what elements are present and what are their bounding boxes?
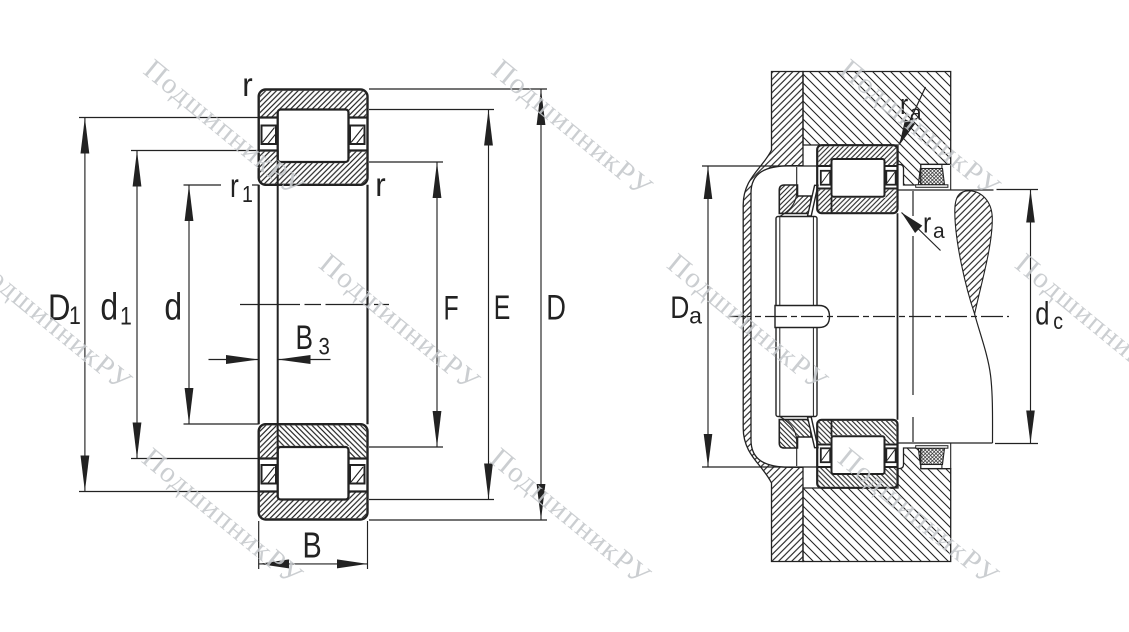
svg-text:r: r [230, 168, 239, 204]
svg-text:F: F [444, 290, 459, 328]
svg-text:3: 3 [319, 333, 330, 360]
svg-text:B: B [296, 319, 313, 357]
svg-text:1: 1 [120, 302, 132, 330]
svg-text:E: E [494, 289, 511, 327]
svg-text:r: r [923, 207, 931, 239]
svg-text:B: B [303, 524, 322, 565]
svg-text:a: a [689, 303, 702, 329]
svg-text:1: 1 [242, 182, 253, 208]
svg-text:D: D [546, 288, 566, 327]
svg-text:D: D [670, 291, 689, 326]
svg-text:d: d [100, 286, 118, 328]
svg-text:r: r [375, 166, 386, 203]
svg-text:a: a [933, 220, 945, 243]
svg-text:d: d [164, 286, 182, 328]
svg-text:r: r [242, 66, 253, 103]
